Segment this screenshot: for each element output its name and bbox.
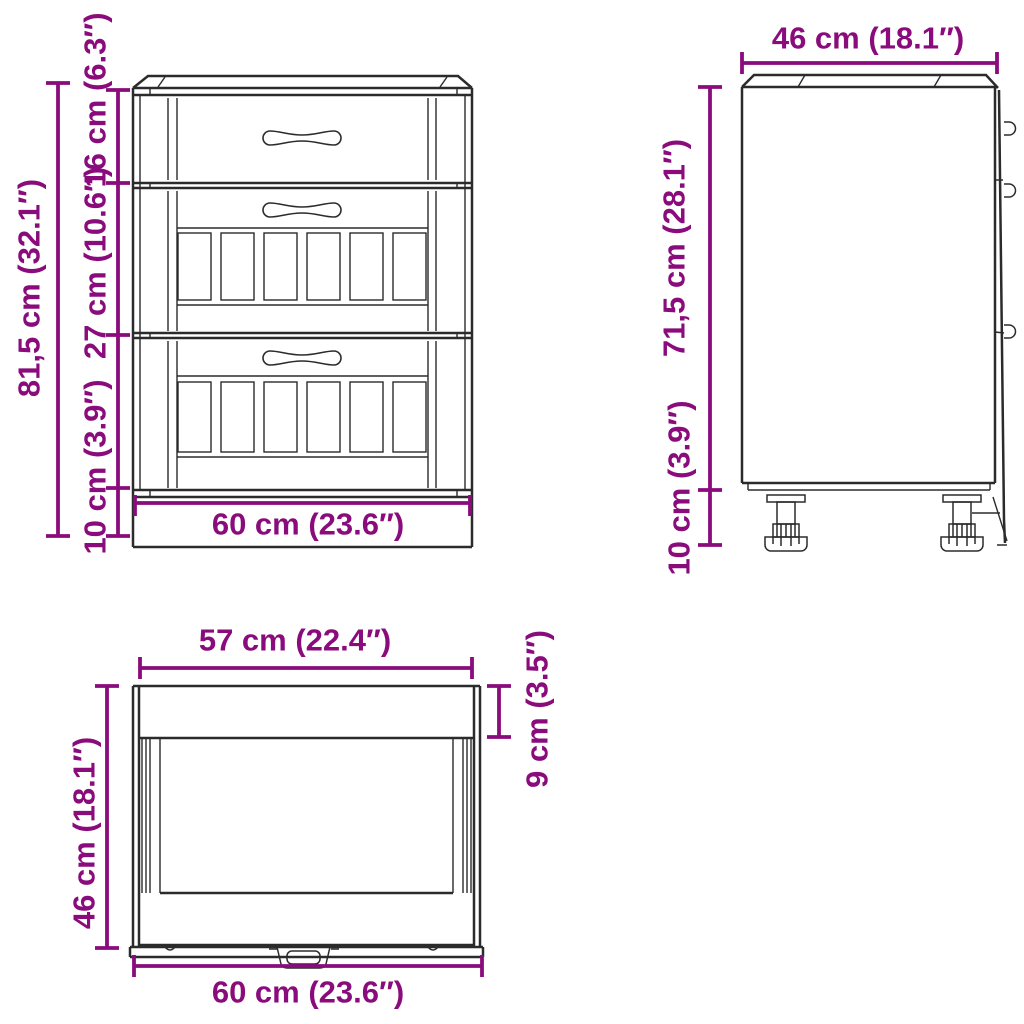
- dimension-diagram: 81,5 cm (32.1″) 16 cm (6.3″) 27 cm (10.6…: [0, 0, 1024, 1024]
- front-cabinet-outline: [133, 76, 472, 547]
- side-drawer-handle-tabs: [1004, 122, 1016, 338]
- side-leg-height-label: 10 cm (3.9″): [664, 400, 695, 575]
- front-width-label: 60 cm (23.6″): [212, 509, 404, 540]
- front-view-drawing: [133, 76, 472, 547]
- diagram-canvas: [0, 0, 1024, 1024]
- top-view-drawing: [130, 686, 483, 968]
- top-width-label: 60 cm (23.6″): [212, 977, 404, 1008]
- front-overall-height-label: 81,5 cm (32.1″): [14, 179, 45, 397]
- front-top-drawer-height-label: 16 cm (6.3″): [80, 12, 111, 187]
- top-worktop-front-label: 9 cm (3.5″): [522, 630, 553, 788]
- top-cabinet-details: [142, 738, 471, 950]
- front-drawer-handles: [263, 131, 341, 365]
- top-dimension-lines: [95, 657, 511, 977]
- top-cabinet-outline: [130, 686, 483, 957]
- front-middle-drawer-height-label: 27 cm (10.6″): [80, 167, 111, 359]
- top-worktop-width-label: 57 cm (22.4″): [199, 625, 391, 656]
- front-base-height-label: 10 cm (3.9″): [80, 379, 111, 554]
- dimension-lines: [46, 52, 997, 977]
- side-view-drawing: [742, 75, 1016, 551]
- front-cabinet-details: [140, 77, 465, 497]
- top-depth-label: 46 cm (18.1″): [69, 737, 100, 929]
- side-cabinet-details: [748, 75, 1007, 545]
- side-depth-label: 46 cm (18.1″): [772, 23, 964, 54]
- side-adjustable-feet: [765, 495, 983, 551]
- side-cabinet-outline: [742, 75, 1005, 543]
- side-body-height-label: 71,5 cm (28.1″): [659, 139, 690, 357]
